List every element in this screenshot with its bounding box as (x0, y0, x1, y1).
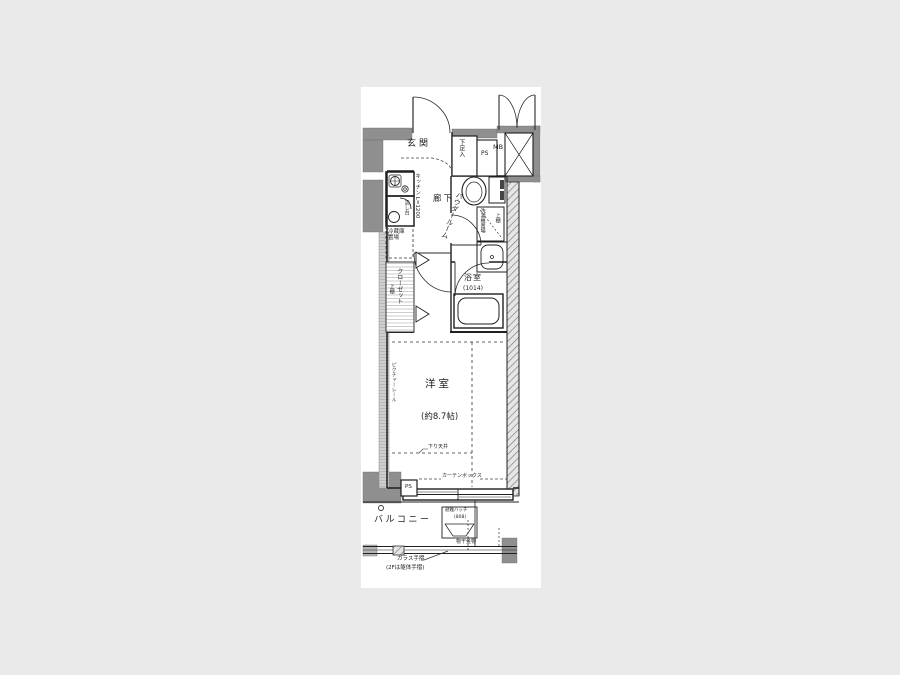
genkan-label: 玄関 (407, 139, 431, 149)
closet-shelf-label: 上棚 (388, 284, 394, 298)
bathroom-label: 浴室 (464, 274, 482, 283)
western-room-label: 洋室 (425, 379, 452, 391)
refrigerator-label: 冷蔵庫 置場 (388, 229, 405, 241)
evacuation-hatch-label: 避難ハッチ (445, 508, 468, 513)
right-boundary-wall (507, 182, 519, 496)
pipe-space-top-label: PS (481, 151, 488, 158)
balcony-window (403, 489, 513, 500)
bathroom-size-label: (1014) (463, 286, 483, 293)
kitchen-label: キッチン L=1200 (414, 173, 420, 229)
down-ceiling-label: 下り天井 (428, 445, 448, 451)
floorplan-drawing (0, 0, 900, 675)
balcony-label: バルコニー (374, 515, 431, 525)
glass-railing-label: ガラス手摺 (397, 556, 424, 562)
picture-rail-label: ピクチャーレール (390, 362, 396, 444)
evacuation-hatch-size-label: (808) (454, 515, 466, 520)
pipe-space-bottom-label: PS (405, 484, 412, 490)
glass-railing-note-label: (2Fは躯体手摺) (386, 565, 424, 571)
closet-label: クローゼット (395, 268, 402, 328)
meter-box-label: MB (493, 144, 503, 151)
washer-shelf-label: 上棚 (494, 213, 500, 227)
shoe-box-label: 下足入 (457, 139, 464, 177)
western-room-size-label: (約8.7帖) (421, 413, 458, 423)
floorplan-page: 玄関 下足入 PS MB キッチン L=1200 流し台 冷蔵庫 置場 廊下 パ… (0, 0, 900, 675)
washer-label: 洗濯機置場 (479, 208, 485, 241)
laundry-bracket-label: 物干金物 (456, 540, 476, 546)
railing-post (393, 546, 404, 555)
meter-box (505, 133, 533, 176)
curtain-box-label: カーテンボックス (442, 474, 482, 480)
sink-label: 流し台 (403, 200, 409, 226)
